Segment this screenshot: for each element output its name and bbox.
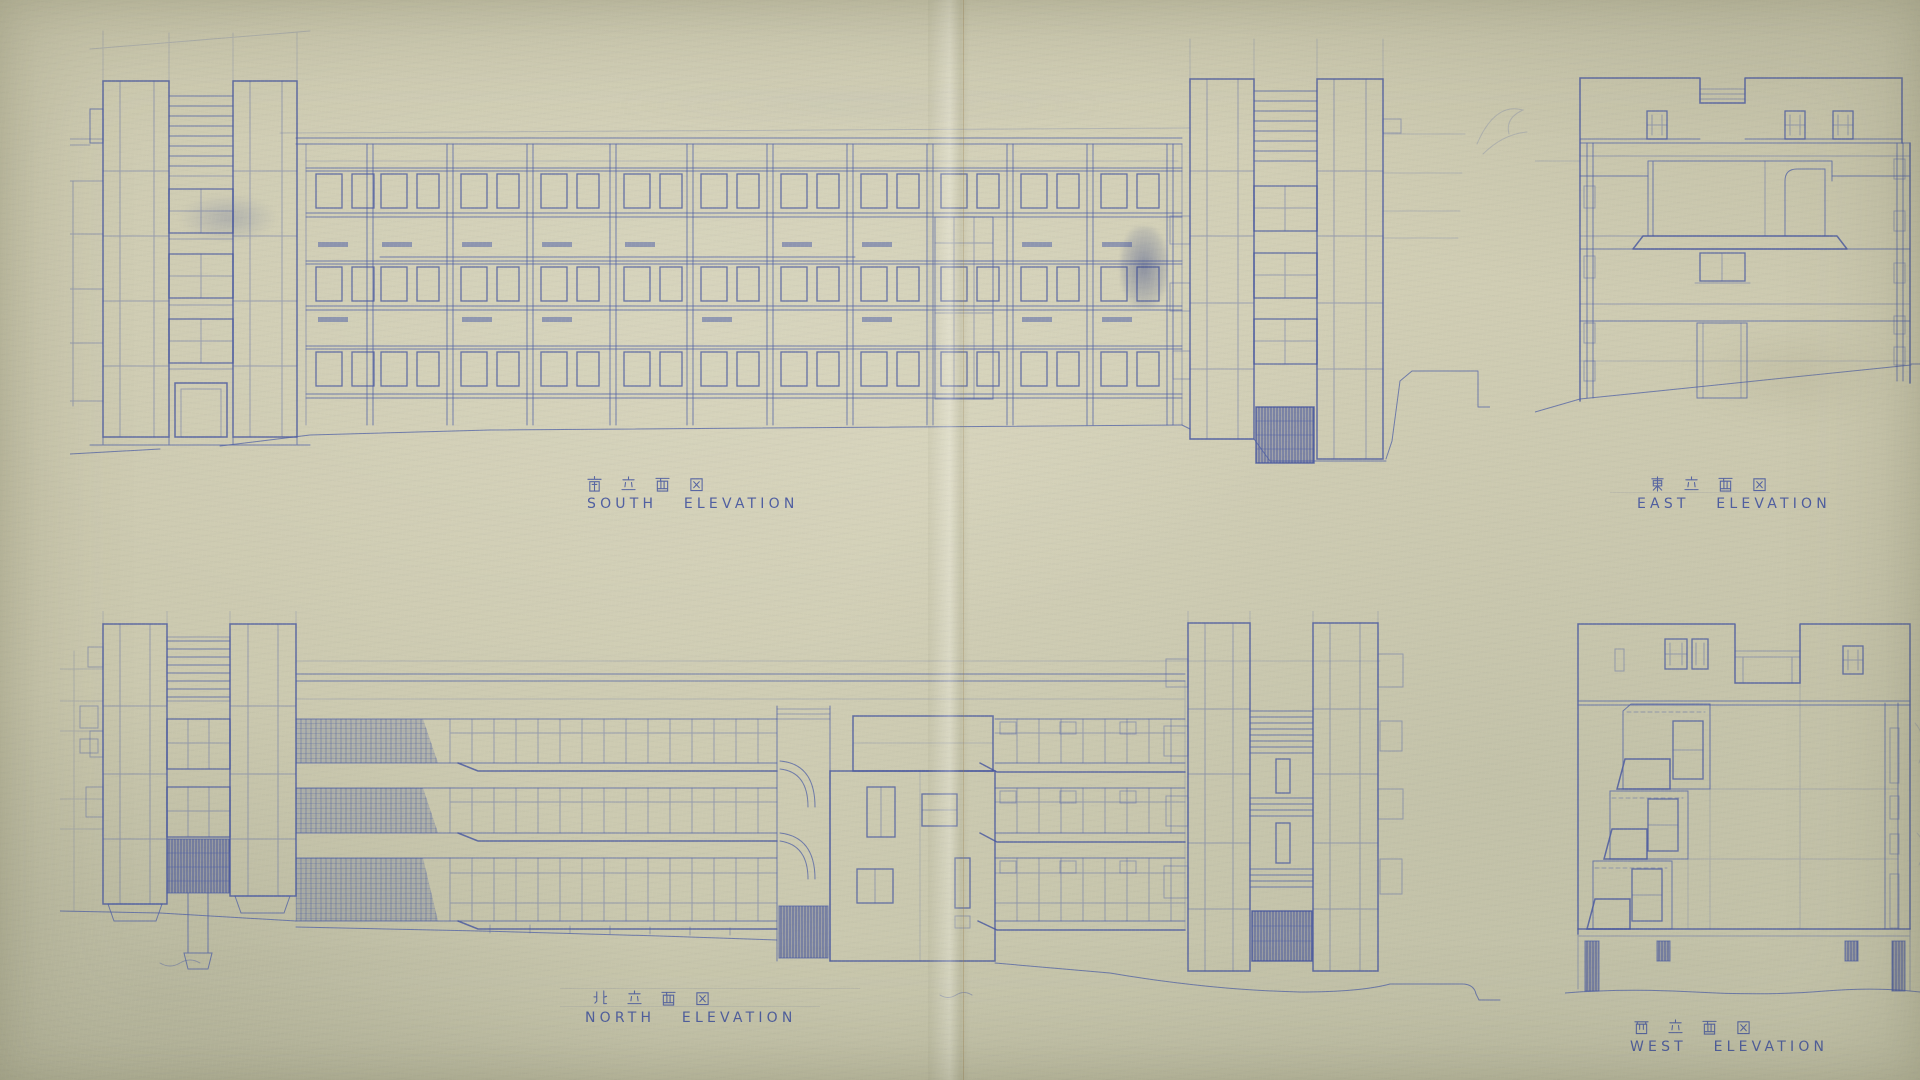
side-balcony-boxes <box>1164 654 1403 898</box>
north-elevation-drawing <box>60 611 1520 1016</box>
clerestory-windows <box>1000 722 1136 873</box>
north-elevation-svg <box>60 611 1520 1016</box>
hatched-balcony-strips <box>296 719 438 921</box>
kanji-men <box>1718 476 1733 492</box>
south-right-stair-tower <box>1170 79 1490 463</box>
kanji-zu <box>695 990 710 1006</box>
south-elevation-kanji <box>587 476 799 492</box>
kanji-kita <box>593 990 608 1006</box>
kanji-zu <box>1752 476 1767 492</box>
kanji-higashi <box>1650 476 1665 492</box>
balcony-unit-2 <box>1604 791 1688 859</box>
north-left-stair-tower <box>86 624 296 969</box>
stair-strip <box>777 706 830 961</box>
south-main-body <box>220 128 1190 446</box>
north-right-stair-tower <box>1164 623 1403 971</box>
kanji-zu <box>1736 1019 1751 1035</box>
balcony-unit-3 <box>1587 861 1672 929</box>
kanji-ritsu <box>1668 1019 1683 1035</box>
west-elevation-svg <box>1565 611 1920 1016</box>
east-elevation-label: EAST ELEVATION <box>1637 476 1831 512</box>
kanji-men <box>655 476 670 492</box>
kanji-ritsu <box>1684 476 1699 492</box>
blueprint-sheet: SOUTH ELEVATION EAST ELEVATION NORTH ELE… <box>0 0 1920 1080</box>
central-bay-stack <box>935 217 993 399</box>
ground-line <box>1565 989 1920 994</box>
kanji-men <box>1702 1019 1717 1035</box>
pilotis-columns <box>367 144 1173 425</box>
kanji-nishi <box>1634 1019 1649 1035</box>
north-elevation-kanji <box>593 990 797 1006</box>
south-elevation-label: SOUTH ELEVATION <box>587 476 799 512</box>
plinth-vents <box>1585 941 1905 991</box>
central-mass <box>830 716 995 961</box>
ground-line <box>220 425 1182 446</box>
recessed-deck <box>1633 161 1847 249</box>
east-elevation-drawing <box>1535 31 1920 436</box>
east-elevation-svg <box>1535 31 1920 436</box>
kanji-men <box>661 990 676 1006</box>
east-elevation-kanji <box>1650 476 1831 492</box>
kanji-zu <box>689 476 704 492</box>
west-elevation-label: WEST ELEVATION <box>1630 1019 1828 1055</box>
west-elevation-title: WEST ELEVATION <box>1630 1039 1828 1055</box>
window-band-2 <box>316 267 1159 301</box>
window-band-3 <box>316 352 1159 386</box>
south-elevation-title: SOUTH ELEVATION <box>587 496 799 512</box>
north-elevation-title: NORTH ELEVATION <box>585 1010 797 1026</box>
rooftop-windows <box>1647 111 1853 139</box>
south-elevation-svg <box>70 21 1490 491</box>
pencil-scribble <box>1465 94 1545 164</box>
west-elevation-kanji <box>1634 1019 1828 1035</box>
balcony-unit-1 <box>1617 704 1710 789</box>
kanji-ritsu <box>627 990 642 1006</box>
kanji-minami <box>587 476 602 492</box>
south-left-stair-tower <box>70 81 310 454</box>
window-band-1 <box>316 174 1159 208</box>
north-elevation-label: NORTH ELEVATION <box>585 990 797 1026</box>
east-elevation-title: EAST ELEVATION <box>1637 496 1831 512</box>
west-elevation-drawing <box>1565 611 1920 1016</box>
south-elevation-drawing <box>70 21 1490 491</box>
kanji-ritsu <box>621 476 636 492</box>
